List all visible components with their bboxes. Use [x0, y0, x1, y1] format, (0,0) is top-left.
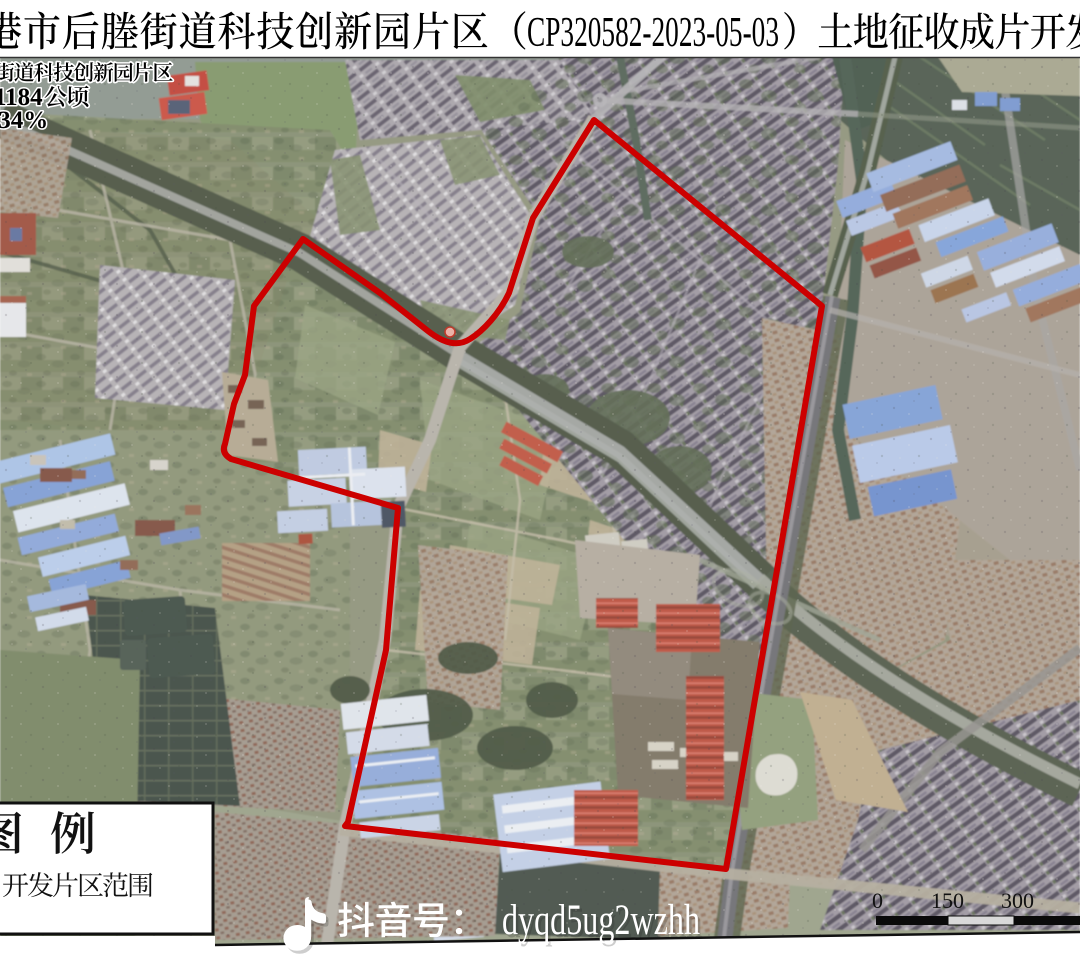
- svg-text:dyqd5ug2wzhh: dyqd5ug2wzhh: [502, 897, 700, 944]
- svg-text:.34%: .34%: [0, 107, 48, 134]
- svg-text:300: 300: [1001, 888, 1034, 913]
- svg-text:CP320582-2023-05-03: CP320582-2023-05-03: [527, 10, 779, 56]
- svg-text:0: 0: [872, 888, 883, 913]
- svg-text:150: 150: [931, 888, 964, 913]
